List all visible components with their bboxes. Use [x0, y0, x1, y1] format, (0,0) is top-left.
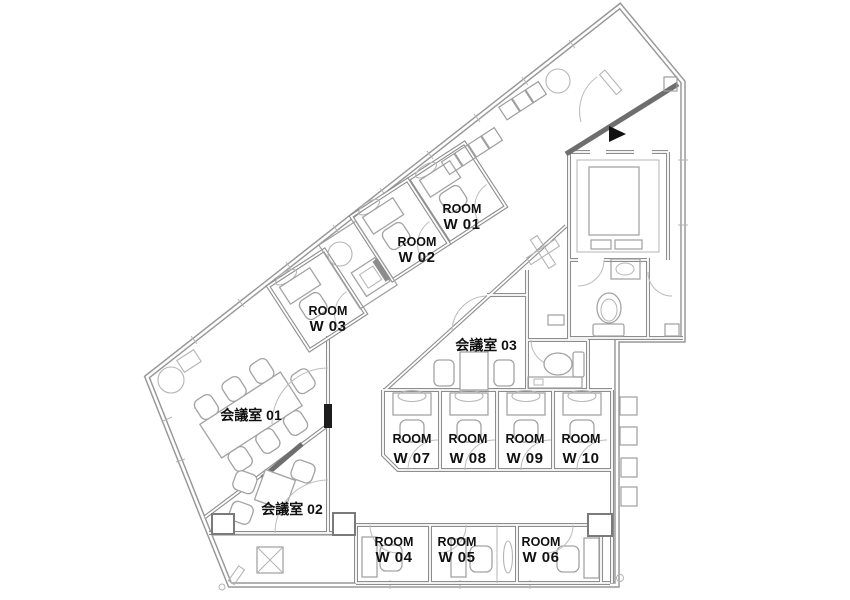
toilet-room-upper	[578, 259, 640, 336]
elevator-car	[589, 167, 639, 235]
room-w07-label-line1: ROOM	[393, 432, 432, 446]
chair	[231, 469, 259, 495]
swing-door-leaves	[519, 228, 566, 275]
room-w09-label-line1: ROOM	[506, 432, 545, 446]
meeting-room-01-label: 会議室 01	[220, 407, 282, 423]
column	[212, 514, 234, 534]
room-w08-label-line1: ROOM	[449, 432, 488, 446]
round-table	[546, 69, 570, 93]
room-w01-label-line2: W 01	[443, 216, 480, 233]
room-w10-label-line2: W 10	[562, 450, 599, 467]
room-w10-label-line1: ROOM	[562, 432, 601, 446]
room-w09-label-line2: W 09	[506, 450, 543, 467]
room-w01-label-line1: ROOM	[443, 202, 482, 216]
shaft	[588, 514, 612, 536]
room-w07-label-line2: W 07	[393, 450, 430, 467]
desk	[450, 393, 488, 415]
room-w08-label-line2: W 08	[449, 450, 486, 467]
toilet-room-lower	[528, 315, 584, 388]
room-w04-label-line2: W 04	[375, 549, 412, 566]
hall-fixtures	[648, 272, 679, 336]
elevator	[577, 160, 659, 252]
room-w06-label-line1: ROOM	[522, 535, 561, 549]
room-w05-label-line1: ROOM	[438, 535, 477, 549]
meeting-room-02-label: 会議室 02	[261, 501, 323, 517]
toilet-icon	[597, 293, 621, 323]
balcony	[212, 513, 356, 590]
table	[460, 352, 488, 390]
locker-row-a	[499, 82, 547, 120]
chair	[494, 360, 514, 386]
entrance-arrow-icon	[609, 126, 626, 142]
corner-furniture	[158, 350, 201, 393]
small-sink	[548, 315, 564, 325]
desk	[393, 393, 431, 415]
desk	[584, 538, 599, 578]
floor-plan-canvas: ROOM W 01 ROOM W 02 ROOM W 03 ROOM W 04 …	[0, 0, 850, 600]
toilet-icon	[544, 353, 572, 375]
room-w02-label-line2: W 02	[398, 249, 435, 266]
chair	[434, 360, 454, 386]
room-w02-label-line1: ROOM	[398, 235, 437, 249]
meeting-room-03-label: 会議室 03	[455, 337, 517, 353]
room-w06-label-line2: W 06	[522, 549, 559, 566]
desk	[563, 393, 601, 415]
column	[333, 513, 355, 535]
room-w05-label-line2: W 05	[438, 549, 475, 566]
desk	[507, 393, 545, 415]
room-w03-label-line2: W 03	[309, 318, 346, 335]
floor-plan-svg: ROOM W 01 ROOM W 02 ROOM W 03 ROOM W 04 …	[0, 0, 850, 600]
round-table	[328, 242, 352, 266]
round-table	[158, 367, 184, 393]
door-leaf	[504, 541, 513, 573]
room-w04-label-line1: ROOM	[375, 535, 414, 549]
sliding-door-panel	[324, 404, 332, 428]
room-w03-label-line1: ROOM	[309, 304, 348, 318]
small-sink	[665, 324, 679, 336]
chair	[557, 546, 579, 572]
